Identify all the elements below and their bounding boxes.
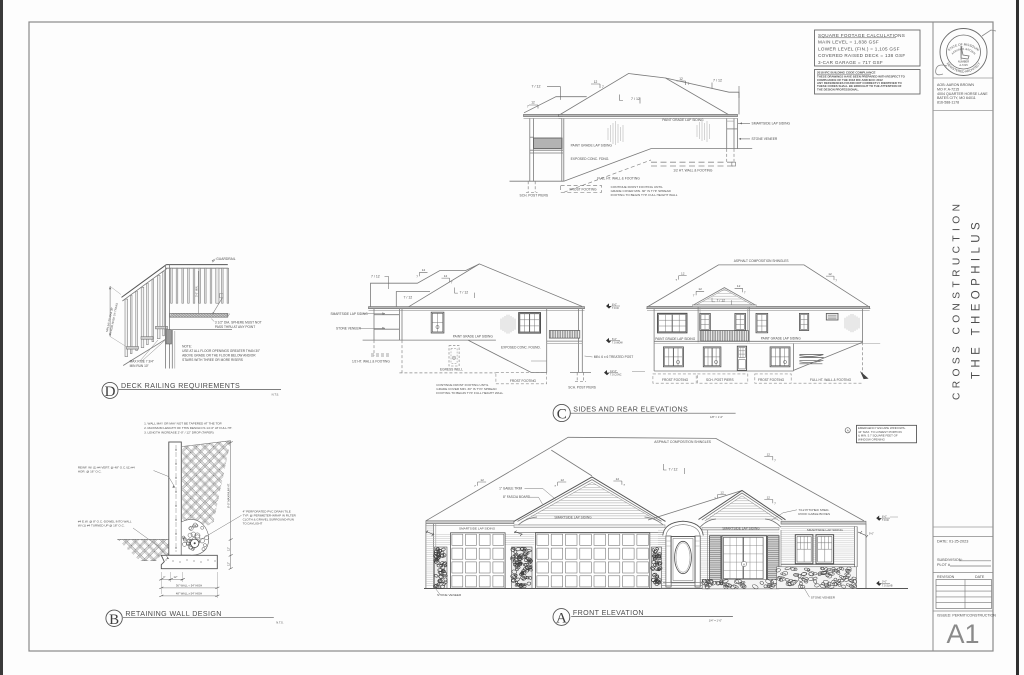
svg-text:1/2 HT. WALL & FOOTING: 1/2 HT. WALL & FOOTING — [673, 169, 713, 173]
svg-text:CROSS CONSTRUCTION: CROSS CONSTRUCTION — [952, 200, 963, 400]
svg-text:RETAINING WALL DESIGN: RETAINING WALL DESIGN — [125, 610, 221, 618]
svg-text:DATE: DATE — [975, 575, 985, 579]
svg-text:48" WALL ≥ 54" HIGH: 48" WALL ≥ 54" HIGH — [176, 591, 202, 595]
svg-text:8'-0" MAXIMUM HT.: 8'-0" MAXIMUM HT. — [227, 483, 231, 508]
svg-text:T.O.W.: T.O.W. — [882, 519, 890, 522]
svg-text:12: 12 — [767, 495, 771, 499]
svg-text:7 / 12: 7 / 12 — [460, 291, 469, 295]
svg-text:EXPOSED CONC. FDNG.: EXPOSED CONC. FDNG. — [571, 157, 610, 161]
svg-text:T.O.W.: T.O.W. — [612, 307, 620, 310]
svg-text:FROST FOOTING: FROST FOOTING — [510, 379, 537, 383]
svg-text:STONE VENEER: STONE VENEER — [437, 593, 462, 597]
svg-text:1/2 HT. WALL & FOOTING: 1/2 HT. WALL & FOOTING — [352, 360, 390, 364]
svg-text:SQUARE FOOTAGE CALCULATIONS: SQUARE FOOTAGE CALCULATIONS — [818, 33, 905, 38]
svg-text:36" WALL < 54" HIGH: 36" WALL < 54" HIGH — [176, 583, 202, 587]
svg-text:7: 7 — [835, 278, 837, 282]
svg-text:PAINT GRADE LAP SIDING: PAINT GRADE LAP SIDING — [662, 118, 704, 122]
svg-text:A-7215: A-7215 — [959, 63, 968, 67]
svg-text:FROST FOOTING: FROST FOOTING — [758, 378, 785, 382]
svg-text:ABOVE GRADE OR THE FLOOR BELOW: ABOVE GRADE OR THE FLOOR BELOW AND/OR — [182, 353, 256, 357]
svg-text:PAINT GRADE LAP SIDING: PAINT GRADE LAP SIDING — [453, 335, 494, 339]
svg-text:NOTE:: NOTE: — [182, 345, 192, 349]
svg-text:12: 12 — [698, 287, 702, 291]
svg-text:SUBDIVISION:: SUBDIVISION: — [937, 558, 963, 562]
svg-text:7 / 12: 7 / 12 — [631, 97, 640, 101]
svg-text:DECK RAILING REQUIREMENTS: DECK RAILING REQUIREMENTS — [121, 382, 240, 390]
svg-text:ASPHALT COMPOSITION SHINGLES: ASPHALT COMPOSITION SHINGLES — [734, 259, 789, 263]
svg-text:7: 7 — [714, 496, 716, 500]
svg-text:12": 12" — [227, 562, 231, 566]
svg-text:SMARTSIDE LAP SIDING: SMARTSIDE LAP SIDING — [752, 122, 791, 126]
svg-text:A1: A1 — [946, 619, 979, 649]
svg-text:C: C — [557, 407, 567, 423]
svg-text:EGRESS WELL: EGRESS WELL — [440, 368, 463, 372]
svg-text:12: 12 — [594, 80, 598, 84]
svg-text:3'-0" MIN.: 3'-0" MIN. — [195, 285, 199, 297]
svg-text:ASPHALT COMPOSITION SHINGLES: ASPHALT COMPOSITION SHINGLES — [654, 440, 711, 444]
svg-text:1. WALL MAY OR MAY NOT BE TA: 1. WALL MAY OR MAY NOT BE TAPERED AT THE… — [144, 422, 222, 426]
svg-text:PAINT GRADE LAP SIDING: PAINT GRADE LAP SIDING — [571, 144, 613, 148]
svg-text:7: 7 — [602, 85, 604, 89]
svg-text:7: 7 — [675, 278, 677, 282]
svg-text:12: 12 — [720, 490, 724, 494]
svg-text:SMARTSIDE LAP SIDING: SMARTSIDE LAP SIDING — [331, 312, 369, 316]
svg-text:GUARDRAIL: GUARDRAIL — [216, 257, 235, 261]
svg-text:PLOT #: PLOT # — [937, 563, 951, 567]
svg-text:PAINT GRADE LAP SIDING: PAINT GRADE LAP SIDING — [655, 337, 696, 341]
svg-text:FULL HT. WALL & FOOTING: FULL HT. WALL & FOOTING — [597, 176, 640, 180]
svg-text:FROST FOOTING: FROST FOOTING — [662, 378, 689, 382]
svg-text:PASS THRU AT ANY POINT: PASS THRU AT ANY POINT — [215, 325, 255, 329]
svg-text:7 / 12: 7 / 12 — [669, 468, 678, 472]
svg-text:12": 12" — [174, 575, 178, 579]
svg-text:7: 7 — [693, 294, 695, 298]
svg-text:D: D — [105, 384, 116, 400]
svg-text:T.O.CONC: T.O.CONC — [610, 374, 622, 377]
svg-text:B: B — [109, 612, 119, 628]
svg-text:7: 7 — [623, 483, 625, 487]
svg-text:A: A — [556, 611, 567, 627]
svg-text:STONE VENEER: STONE VENEER — [811, 595, 836, 599]
svg-text:SCH. POST PIERS: SCH. POST PIERS — [706, 378, 734, 382]
svg-text:2. MAXIMUM LENGTH OF THIS DE: 2. MAXIMUM LENGTH OF THIS DESIGN IS 14'-… — [144, 426, 232, 430]
svg-text:MIN RUN 10": MIN RUN 10" — [130, 364, 149, 368]
svg-text:X: X — [453, 356, 455, 360]
svg-text:SCH. POST PIERS: SCH. POST PIERS — [568, 385, 596, 389]
svg-text:HOR. @ 16" O.C.: HOR. @ 16" O.C. — [78, 470, 102, 474]
svg-text:12": 12" — [227, 547, 231, 551]
svg-text:4004 QUARTER HORSE LANE: 4004 QUARTER HORSE LANE — [937, 92, 988, 96]
svg-text:N.T.S.: N.T.S. — [272, 392, 280, 396]
svg-text:12: 12 — [681, 271, 685, 275]
svg-text:3-CAR GARAGE = 717 GSF: 3-CAR GARAGE = 717 GSF — [818, 60, 883, 65]
svg-text:WINDOW OPENING: WINDOW OPENING — [858, 437, 886, 441]
svg-text:EXPOSED CONC. FOUND.: EXPOSED CONC. FOUND. — [501, 346, 541, 350]
svg-text:7 / 12: 7 / 12 — [717, 299, 726, 303]
svg-text:STAIRS WITH THREE OR MORE RISE: STAIRS WITH THREE OR MORE RISERS — [182, 358, 243, 362]
svg-text:MIN. 6 x 6 TREATED POST: MIN. 6 x 6 TREATED POST — [594, 355, 634, 359]
svg-text:FOOTING TO BEGIN TYP. FULL HEI: FOOTING TO BEGIN TYP. FULL HEIGHT WALL — [611, 193, 678, 197]
svg-text:A: A — [743, 562, 745, 566]
svg-text:7 / 12: 7 / 12 — [713, 79, 722, 83]
svg-text:7: 7 — [554, 484, 556, 488]
svg-text:LOWER LEVEL (FIN.) = 1,105 GSF: LOWER LEVEL (FIN.) = 1,105 GSF — [818, 46, 900, 51]
svg-text:7 / 12: 7 / 12 — [404, 295, 413, 299]
svg-text:9'-0": 9'-0" — [869, 533, 874, 536]
svg-text:12: 12 — [828, 272, 832, 276]
svg-text:12: 12 — [737, 284, 741, 288]
svg-text:DATE: 01-25-2023: DATE: 01-25-2023 — [937, 540, 968, 544]
svg-text:STONE VENEER: STONE VENEER — [336, 326, 362, 330]
svg-text:MO #: A-7215: MO #: A-7215 — [937, 87, 959, 91]
svg-text:SMARTSIDE LAP SIDING: SMARTSIDE LAP SIDING — [554, 515, 592, 519]
svg-text:7 / 12: 7 / 12 — [371, 275, 380, 279]
svg-text:1/8" = 1'-0": 1/8" = 1'-0" — [710, 415, 723, 419]
svg-text:STONE VENEER: STONE VENEER — [752, 137, 778, 141]
svg-text:7: 7 — [474, 484, 476, 488]
svg-text:SIDES AND REAR ELEVATIONS: SIDES AND REAR ELEVATIONS — [573, 405, 688, 413]
svg-text:7 / 12: 7 / 12 — [532, 84, 541, 88]
svg-text:12: 12 — [531, 101, 535, 105]
svg-text:BATES CITY, MO 64011: BATES CITY, MO 64011 — [937, 96, 976, 100]
svg-text:12: 12 — [560, 478, 564, 482]
svg-text:816-588-1178: 816-588-1178 — [937, 101, 959, 105]
svg-text:MAIN LEVEL = 1,838 GSF: MAIN LEVEL = 1,838 GSF — [818, 40, 879, 45]
svg-text:SMARTSIDE LAP SIDING: SMARTSIDE LAP SIDING — [807, 528, 844, 532]
svg-text:12: 12 — [480, 478, 484, 482]
svg-text:1" GABLE TRIM: 1" GABLE TRIM — [499, 486, 522, 490]
svg-text:T.O.WDW: T.O.WDW — [612, 342, 623, 345]
svg-text:1/4" = 1'-0": 1/4" = 1'-0" — [709, 618, 722, 622]
svg-text:ISSUED: PERMIT/CONSTRUCTION: ISSUED: PERMIT/CONSTRUCTION — [937, 613, 996, 617]
svg-text:8" FASCIA BOARD: 8" FASCIA BOARD — [503, 495, 531, 499]
svg-text:REVISION: REVISION — [937, 575, 955, 579]
svg-text:7: 7 — [527, 105, 529, 109]
svg-text:T.O.SLAB: T.O.SLAB — [882, 584, 893, 587]
svg-text:7: 7 — [744, 291, 746, 295]
svg-text:A: A — [847, 429, 849, 433]
svg-text:ROOF GABLE BOXES: ROOF GABLE BOXES — [798, 512, 830, 516]
svg-text:12: 12 — [767, 452, 771, 456]
svg-text:7: 7 — [416, 275, 418, 279]
svg-text:12: 12 — [422, 268, 426, 272]
svg-text:7: 7 — [688, 82, 690, 86]
svg-text:4": 4" — [163, 575, 165, 579]
svg-text:AOB: AARON BROWN: AOB: AARON BROWN — [937, 83, 974, 87]
svg-text:SMARTSIDE LAP SIDING: SMARTSIDE LAP SIDING — [722, 527, 760, 531]
svg-text:FRONT ELEVATION: FRONT ELEVATION — [573, 609, 644, 617]
svg-text:W/ (1) #4 TURNED UP @ 18" O.C.: W/ (1) #4 TURNED UP @ 18" O.C. — [78, 524, 125, 528]
svg-text:12: 12 — [679, 77, 683, 81]
svg-text:12: 12 — [616, 477, 620, 481]
svg-text:THE THEOPHILUS: THE THEOPHILUS — [971, 218, 983, 379]
svg-text:12: 12 — [444, 274, 448, 278]
svg-text:FOOTING TO BEGIN TYP. FULL HEI: FOOTING TO BEGIN TYP. FULL HEIGHT WALL — [436, 391, 503, 395]
svg-text:COVERED RAISED DECK = 138 GSF: COVERED RAISED DECK = 138 GSF — [818, 53, 905, 58]
svg-text:3. LENGTH INCREASE 2'-0" / 1: 3. LENGTH INCREASE 2'-0" / 12" DROP (TAP… — [144, 431, 214, 435]
svg-text:USE AT ALL FLOOR OPENINGS GREA: USE AT ALL FLOOR OPENINGS GREATER THAN 3… — [182, 349, 260, 353]
svg-text:7: 7 — [774, 501, 776, 505]
svg-text:SMARTSIDE LAP SIDING: SMARTSIDE LAP SIDING — [459, 527, 496, 531]
svg-text:TO DAYLIGHT: TO DAYLIGHT — [243, 521, 263, 525]
svg-text:FROST FOOTING: FROST FOOTING — [570, 187, 597, 191]
svg-text:PAINT GRADE LAP SIDING: PAINT GRADE LAP SIDING — [761, 337, 802, 341]
svg-text:FULL HT. WALL & FOOTING: FULL HT. WALL & FOOTING — [810, 378, 852, 382]
svg-text:THE DESIGN PROFESSIONAL.: THE DESIGN PROFESSIONAL. — [817, 87, 859, 91]
svg-text:N.T.S.: N.T.S. — [276, 621, 284, 625]
svg-text:7: 7 — [774, 458, 776, 462]
svg-text:7: 7 — [451, 280, 453, 284]
svg-text:SCH. POST PIERS: SCH. POST PIERS — [520, 194, 549, 198]
